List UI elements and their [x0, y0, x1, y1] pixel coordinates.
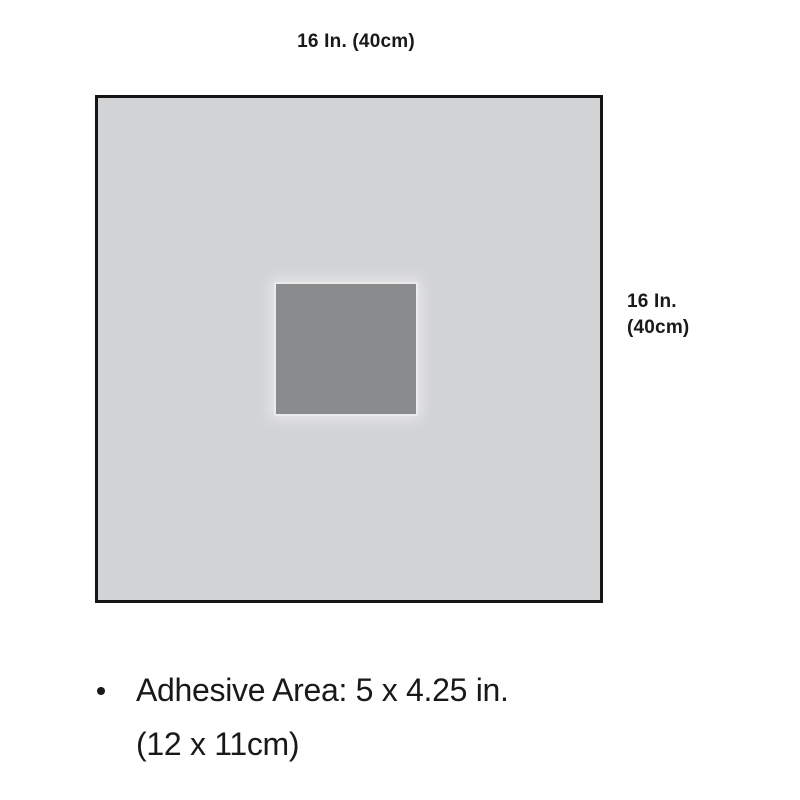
- side-dimension-inches: 16 In.: [627, 289, 689, 315]
- drape-outline: [95, 95, 603, 603]
- adhesive-area-note-line2: (12 x 11cm): [136, 726, 299, 763]
- top-width-dimension-label: 16 In. (40cm): [95, 31, 603, 53]
- side-height-dimension-label: 16 In. (40cm): [627, 289, 689, 341]
- side-dimension-cm: (40cm): [627, 315, 689, 341]
- product-dimension-diagram: 16 In. (40cm) 16 In. (40cm) Adhesive Are…: [0, 0, 800, 800]
- bullet-dot: [97, 687, 105, 695]
- adhesive-area-patch: [276, 284, 416, 414]
- adhesive-area-note-line1: Adhesive Area: 5 x 4.25 in.: [136, 672, 509, 709]
